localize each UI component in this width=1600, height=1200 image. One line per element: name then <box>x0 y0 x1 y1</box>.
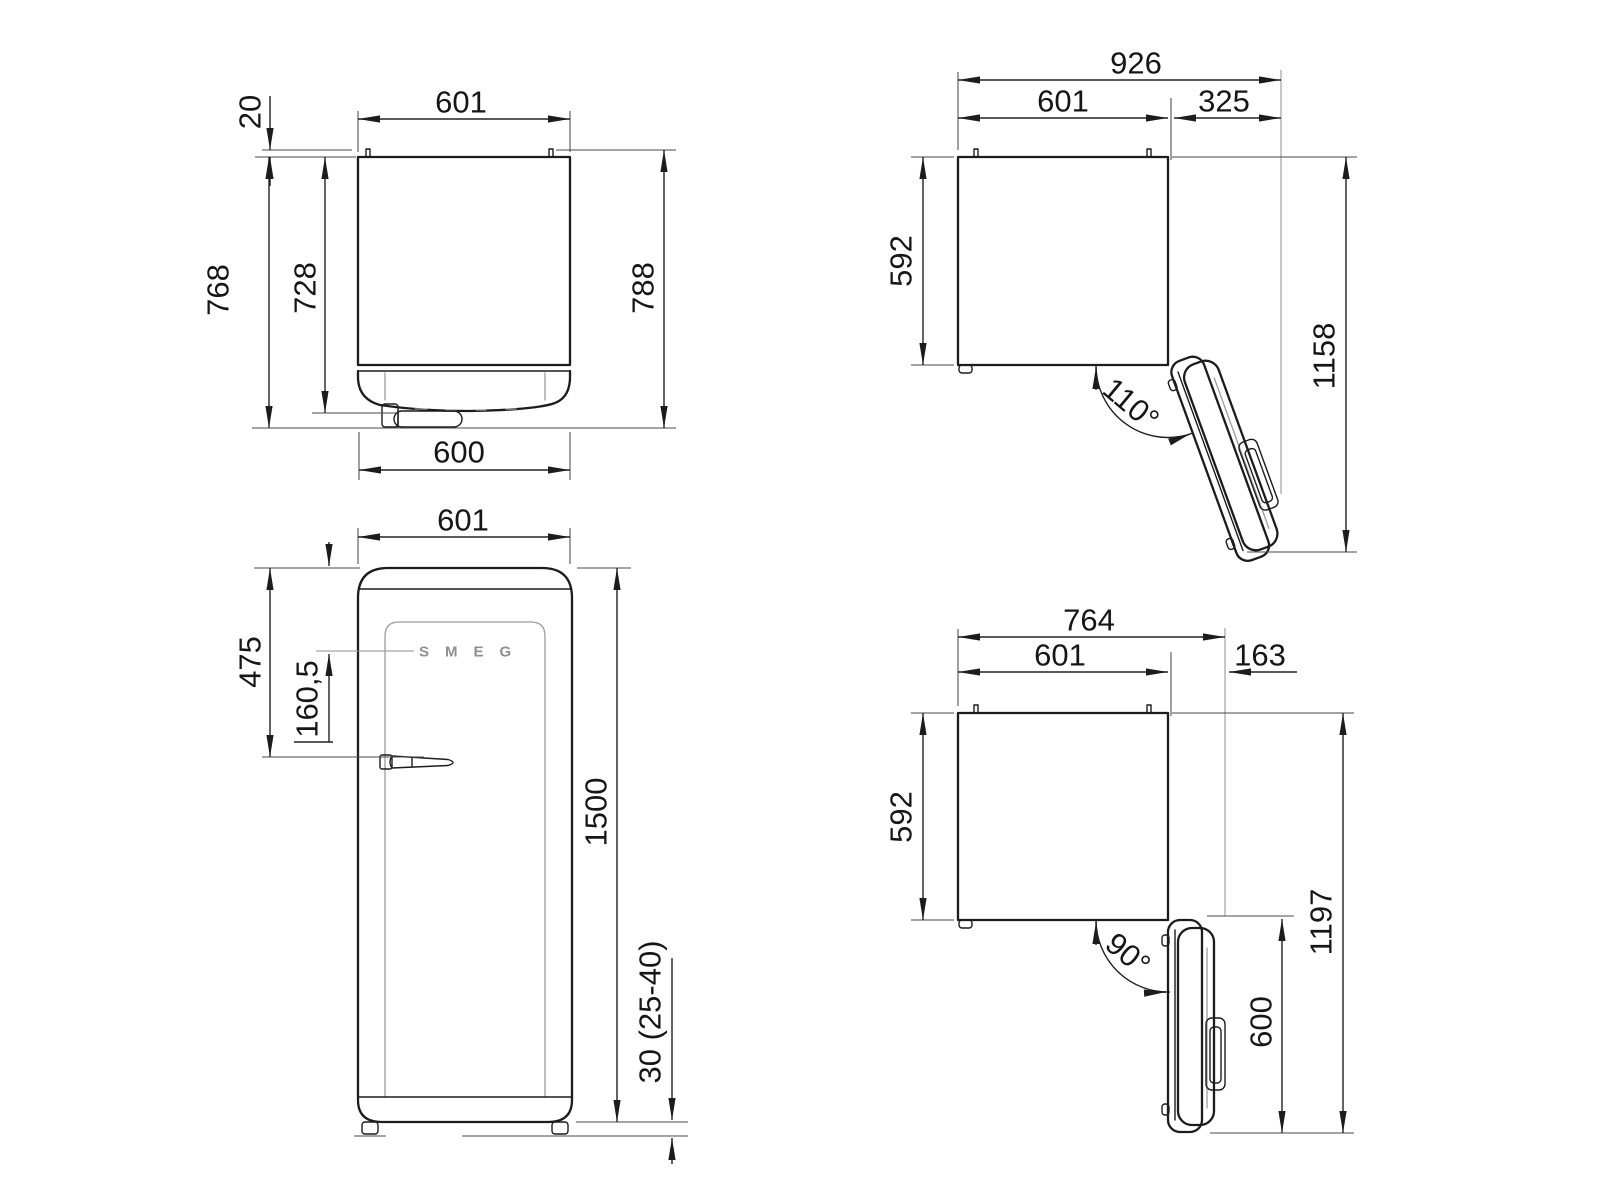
dim-logo-offset: 160,5 <box>290 660 325 738</box>
dimension-drawing-page: 20 601 768 728 788 600 <box>0 0 1600 1200</box>
dimension-drawing: 20 601 768 728 788 600 <box>0 0 1600 1200</box>
door-top-outline <box>358 371 570 411</box>
foot-right <box>552 1122 568 1134</box>
rear-spacer-right <box>549 149 553 157</box>
fridge-body-110 <box>958 149 1168 373</box>
dim-body-depth-90: 592 <box>884 791 919 843</box>
dim-width-110: 601 <box>1037 84 1089 119</box>
dim-handle-offset: 475 <box>233 636 268 688</box>
angle-110: 110° <box>1096 365 1193 441</box>
dim-feet-height: 30 (25-40) <box>633 940 668 1083</box>
dim-body-depth-110: 592 <box>884 235 919 287</box>
dims-front: 601 475 160,5 1500 30 (25-40) <box>233 503 689 1165</box>
rear-spacer-left <box>366 149 370 157</box>
dim-overall-width-90: 764 <box>1063 603 1115 638</box>
foot-left <box>362 1122 378 1134</box>
fridge-body-top <box>358 149 570 427</box>
dim-width-90: 601 <box>1034 638 1086 673</box>
door-open-90 <box>1162 920 1225 1132</box>
dim-clearance-90: 163 <box>1234 638 1286 673</box>
dim-open-depth-90: 1197 <box>1304 889 1339 956</box>
fridge-body-90 <box>958 705 1168 928</box>
dim-depth-with-door: 768 <box>201 264 236 316</box>
view-door-90: 90° 764 601 163 592 600 <box>884 603 1355 1134</box>
dim-height: 1500 <box>579 778 614 847</box>
brand-logo: SMEG <box>419 644 527 661</box>
dims-top-closed: 20 601 768 728 788 600 <box>201 85 677 481</box>
dim-width-front: 601 <box>437 503 489 538</box>
angle-90: 90° <box>1096 920 1170 993</box>
dim-door-angle-90: 90° <box>1099 926 1157 983</box>
fridge-front: SMEG <box>358 568 572 1134</box>
view-top-closed: 20 601 768 728 788 600 <box>201 85 677 481</box>
dims-door-90: 764 601 163 592 600 1197 <box>884 603 1355 1134</box>
view-door-110: 110° 926 601 325 592 1158 <box>884 46 1358 567</box>
dim-open-depth-110: 1158 <box>1307 323 1342 390</box>
dim-door-width-90: 600 <box>1244 996 1279 1048</box>
dim-rear-spacer: 20 <box>233 95 268 129</box>
dim-body-depth: 728 <box>288 262 323 314</box>
dim-clearance-110: 325 <box>1198 84 1250 119</box>
dim-width-top: 601 <box>435 85 487 120</box>
dims-door-110: 926 601 325 592 1158 <box>884 46 1358 553</box>
dim-overall-width-110: 926 <box>1110 46 1162 81</box>
view-front: SMEG 601 475 160,5 <box>233 503 689 1165</box>
dim-total-depth: 788 <box>626 262 661 314</box>
dim-door-width: 600 <box>433 435 485 470</box>
door-open-110 <box>1162 346 1294 567</box>
